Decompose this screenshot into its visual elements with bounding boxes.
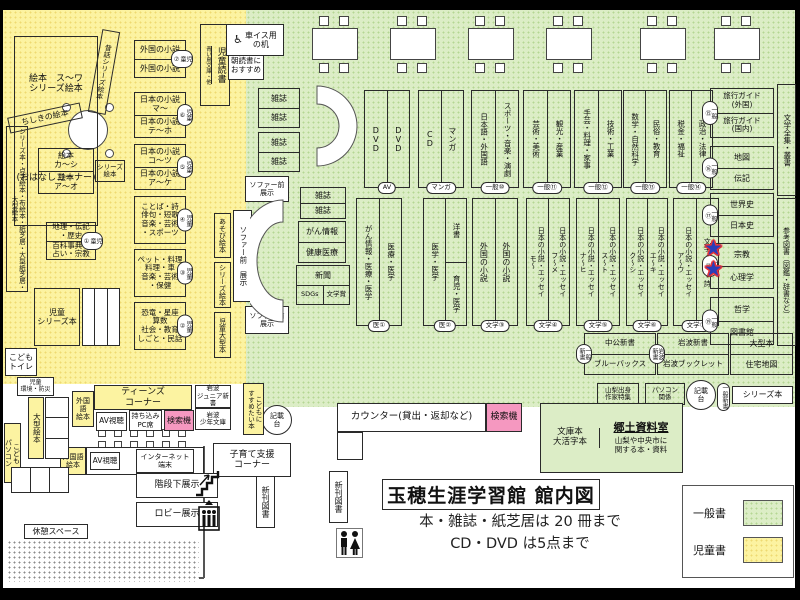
- chair: [495, 63, 505, 73]
- shelf-cell: 雑誌: [301, 188, 345, 203]
- shelf-cell: 地図: [711, 147, 773, 168]
- shinsho-iwanami-shelf: 岩波新書岩波ブックレット岩波新書: [657, 333, 729, 375]
- shelf-general-13: 数学・自然科学民俗・教育一般⑬: [623, 90, 667, 188]
- shelf-cell: 岩波ブックレット: [658, 354, 728, 375]
- category-tag: 文学④: [534, 320, 563, 332]
- wheelchair-icon: ♿: [233, 34, 243, 47]
- magazine-rack: 雑誌雑誌: [258, 132, 300, 172]
- shelf-column: 医学・医学: [424, 199, 445, 325]
- highlight-star-icon: ★: [704, 259, 723, 280]
- shelf-column: 洋書: [446, 199, 467, 262]
- shelf-cell: 旅行ガイド (外国): [711, 89, 773, 113]
- category-tag: 児童⑦: [171, 50, 193, 68]
- rest-space-area: [7, 540, 199, 582]
- left-wall-shelf: シリーズ本・点字絵本・布絵本・紙芝居・大型紙芝居・大型絵本: [6, 126, 28, 292]
- shelf-literature-4: 日本の小説・エッセイ モ〜日本の小説・エッセイ フ〜メ文学④: [526, 198, 570, 326]
- category-tag: 一般⑫: [583, 182, 613, 194]
- shelf-column: CD: [419, 91, 441, 187]
- legend-row-children: 児童書: [693, 537, 783, 563]
- shelf-column: 技術・工業: [598, 91, 622, 187]
- empty-shelf-cell: [46, 438, 68, 458]
- legend-swatch-general: [743, 500, 783, 526]
- recommended-for-kids: こどもに すすめたい本: [243, 383, 264, 435]
- shinsho-chuko-shelf: 中公新書ブルーバックス一般新書: [584, 333, 656, 375]
- chair: [721, 63, 731, 73]
- chair: [417, 63, 427, 73]
- reading-table: [390, 28, 436, 60]
- category-tag: 一般⑮: [702, 101, 718, 125]
- chair: [105, 149, 114, 158]
- shelf-cell: 岩波新書: [658, 334, 728, 354]
- chair: [647, 16, 657, 26]
- chair: [553, 63, 563, 73]
- shelf-cell: SDGs: [297, 286, 323, 304]
- shelf-column: DVD: [387, 91, 410, 187]
- shelf-column: 外国の小説: [473, 199, 495, 325]
- shelf-unit: [45, 397, 69, 459]
- reading-table: [546, 28, 592, 60]
- highlight-star-icon: ★: [704, 238, 723, 259]
- shelf-cell: 日本史: [711, 215, 773, 237]
- chair: [319, 63, 329, 73]
- morning-reading-display: 朝読書に おすすめ: [228, 52, 264, 80]
- shelf-cell: 雑誌: [301, 203, 345, 219]
- category-tag: 児童②: [177, 315, 193, 338]
- lending-rule-books: 本・雑誌・紙芝居は 20 冊まで: [392, 510, 648, 531]
- chair: [475, 63, 485, 73]
- shelf-general-17: 世界史日本史一般⑰: [710, 193, 774, 237]
- category-tag: 一般⑯: [702, 158, 718, 179]
- crescent-sofa: [314, 84, 362, 172]
- av-booth: AV視聴: [90, 452, 120, 470]
- shelf-cell: 住宅地図: [731, 354, 792, 375]
- shelf-sublabel: 青い鳥文庫・他: [201, 46, 212, 85]
- search-terminal: 検索機: [164, 410, 194, 431]
- chair: [573, 16, 583, 26]
- category-tag: 一般⑬: [630, 182, 660, 194]
- byod-pc-seat: 持ち込み PC席: [129, 410, 162, 431]
- empty-shelf-cell: [94, 289, 106, 345]
- large-books-shelf: 大型本住宅地図: [730, 333, 793, 375]
- children-shelf-6: 日本の小説 マ〜日本の小説 テ〜ホ児童⑥: [134, 92, 186, 138]
- series-ehon-shelf: シリーズ絵本: [214, 262, 231, 308]
- empty-shelf-cell: [46, 417, 68, 437]
- writing-stand: 記載 台: [686, 380, 716, 410]
- shelf-medical-1: がん情報・医療・医学医療・医学医①: [356, 198, 402, 326]
- children-shelf-2: 恐竜・星座 算数 社会・教育 しごと・民話児童②: [134, 302, 186, 350]
- counter-leg: [337, 432, 363, 460]
- shelf-cell: 世界史: [711, 194, 773, 215]
- picture-books-shelf: 絵本 カ〜シ絵本 ア〜オ: [38, 148, 94, 194]
- iwanami-junior-shinsho: 岩波 ジュニア新書: [195, 385, 231, 408]
- childcare-support-corner: 子育て支援 コーナー: [213, 443, 291, 477]
- shelf-unit: [11, 467, 69, 493]
- category-tag: 文学⑤: [584, 320, 613, 332]
- shelf-column: 日本の小説・エッセイ ク〜シ: [627, 199, 647, 325]
- shelf-cell: 絵本 カ〜シ: [39, 149, 93, 171]
- shelf-literature-3: 外国の小説外国の小説文学③: [472, 198, 518, 326]
- bunko-large-print-cell: 文庫本 大活字本: [541, 428, 600, 448]
- shelf-column: 日本語・外国語: [472, 91, 495, 187]
- chair: [667, 63, 677, 73]
- empty-shelf-cell: [46, 398, 68, 417]
- shelf-cell: 哲学: [711, 298, 773, 321]
- chair: [475, 16, 485, 26]
- shelf-column: 医療・医学: [379, 199, 402, 325]
- shelf-column: 芸術・美術: [524, 91, 547, 187]
- shelf-column: スポーツ・音楽・演劇: [495, 91, 519, 187]
- local-materials-room: 文庫本 大活字本郷土資料室山梨や中央市に 関する本・資料: [540, 403, 683, 473]
- series-books-shelf: シリーズ本: [732, 386, 793, 404]
- category-tag: 一般⑭: [676, 182, 706, 194]
- legend: 一般書 児童書: [682, 485, 794, 578]
- search-terminal: 検索機: [486, 403, 522, 432]
- yamanashi-authors-display: 山梨出身 作家特集: [597, 383, 639, 405]
- shelf-column: 手芸・料理・家事: [575, 91, 598, 187]
- category-tag: 一般⑩: [481, 182, 510, 194]
- shelf-cell: ブルーバックス: [585, 354, 655, 375]
- cancer-health-info-rack: がん情報健康医療: [298, 221, 346, 263]
- children-series-shelf: 児童 シリーズ本: [34, 288, 80, 346]
- shelf-cell: 健康医療: [299, 242, 345, 263]
- shelf-column: 税金・福祉: [670, 91, 691, 187]
- category-tag: 一般⑲: [702, 310, 718, 333]
- elevator-icon: [198, 500, 220, 535]
- empty-shelf-cell: [12, 468, 30, 492]
- empty-shelf-cell: [83, 289, 94, 345]
- reading-table: [468, 28, 514, 60]
- shelf-column: 日本の小説・エッセイ ア〜ウ: [674, 199, 696, 325]
- shelf-general-12: 手芸・料理・家事技術・工業一般⑫: [574, 90, 622, 188]
- chair: [667, 16, 677, 26]
- category-tag: マンガ: [426, 182, 456, 194]
- shelf-column: 日本の小説・エッセイ フ〜メ: [548, 199, 570, 325]
- chair: [647, 63, 657, 73]
- children-environment-shelf: 児童 環境・防災: [17, 377, 54, 396]
- wheelchair-desk: ♿車イス用 の机: [226, 24, 284, 56]
- category-tag: 児童④: [177, 209, 193, 232]
- legend-label-children: 児童書: [693, 542, 726, 558]
- shelf-column: DVD: [365, 91, 387, 187]
- shelf-cell: 新聞: [297, 266, 349, 286]
- series-ehon-tag: シリーズ 絵本: [95, 160, 125, 182]
- chair: [721, 16, 731, 26]
- shelf-medical-2: 医学・医学洋書育児・医学医②: [423, 198, 467, 326]
- empty-shelf-cell: [30, 468, 49, 492]
- shelf-column: 日本の小説・エッセイ モ〜: [527, 199, 548, 325]
- chair: [339, 16, 349, 26]
- foreign-picture-books: 外国語 絵本: [72, 391, 94, 427]
- chair: [397, 16, 407, 26]
- shelf-column: がん情報・医療・医学: [357, 199, 379, 325]
- chair: [553, 16, 563, 26]
- shelf-cell: がん情報: [299, 222, 345, 242]
- shelf-cell: 雑誌: [259, 133, 299, 152]
- reading-table: [312, 28, 358, 60]
- empty-shelf-cell: [49, 468, 68, 492]
- rest-space-label: 休憩スペース: [24, 524, 88, 539]
- shelf-column: 日本の小説・エッセイ ス〜ト: [598, 199, 620, 325]
- reference-books-shelf: 参考図書（図鑑・辞書など）: [777, 198, 796, 346]
- shelf-column: 外国の小説: [495, 199, 518, 325]
- shelf-manga: CDマンガマンガ: [418, 90, 464, 188]
- category-tag: 医①: [368, 320, 390, 332]
- iwanami-shonen-bunko: 岩波 少年文庫: [195, 408, 231, 430]
- newspaper-rack: 新聞SDGs文学賞: [296, 265, 350, 305]
- category-tag: 医②: [434, 320, 456, 332]
- large-picture-books: 大型絵本: [28, 397, 44, 459]
- shelf-column: マンガ: [441, 91, 464, 187]
- category-tag: 一般⑪: [532, 182, 562, 194]
- chair: [417, 16, 427, 26]
- children-shelf-5: 日本の小説 コ〜ツ日本の小説 ア〜ケ児童⑤: [134, 144, 186, 190]
- shelf-cell: 中公新書: [585, 334, 655, 354]
- shelf-general-10: 日本語・外国語スポーツ・音楽・演劇一般⑩: [471, 90, 519, 188]
- teens-corner: ティーンズ コーナー: [94, 385, 192, 410]
- chair: [741, 16, 751, 26]
- writing-stand: 記載 台: [262, 405, 292, 435]
- chair: [319, 16, 329, 26]
- shelf-column: 日本の小説・エッセイ ナ〜ヒ: [577, 199, 598, 325]
- shelf-column: 民俗・教育: [645, 91, 667, 187]
- category-tag: 文学③: [481, 320, 510, 332]
- asobi-ehon-shelf: あそび絵本: [214, 213, 231, 258]
- chair: [397, 63, 407, 73]
- shelf-general-11: 芸術・美術観光・産業一般⑪: [523, 90, 571, 188]
- children-toilet: こども トイレ: [5, 348, 37, 376]
- reading-table: [714, 28, 760, 60]
- shelf-column: 数学・自然科学: [624, 91, 645, 187]
- empty-shelf-cell: [107, 289, 119, 345]
- literature-collection-shelf: 文学全集・叢書: [777, 84, 796, 196]
- category-tag: 一般新書: [576, 344, 592, 364]
- shelf-cell: 大型本: [731, 334, 792, 354]
- shelf-general-16: 地図伝記一般⑯: [710, 146, 774, 190]
- shelf-cell: 旅行ガイド (国内): [711, 113, 773, 138]
- internet-terminal: インターネット 端末: [136, 449, 194, 473]
- service-counter: カウンター(貸出・返却など): [337, 403, 486, 432]
- legend-label-general: 一般書: [693, 505, 726, 521]
- restroom-icon: [336, 528, 363, 562]
- pc-related-shelf: パソコン 関係: [645, 383, 685, 405]
- shelf-cell: 絵本 ア〜オ: [39, 171, 93, 194]
- category-tag: 一般⑰: [702, 205, 718, 226]
- shelf-literature-5: 日本の小説・エッセイ ナ〜ヒ日本の小説・エッセイ ス〜ト文学⑤: [576, 198, 620, 326]
- new-books-shelf: 新刊図書: [329, 471, 348, 523]
- reading-table: [640, 28, 686, 60]
- shelf-cell: 雑誌: [259, 89, 299, 108]
- map-title: 玉穂生涯学習館 館内図: [382, 479, 600, 510]
- library-floor-map: ★ ★ 玉穂生涯学習館 館内図 本・雑誌・紙芝居: [0, 0, 800, 600]
- shelf-cell: 伝記: [711, 168, 773, 190]
- lending-rule-av: CD・DVD は5点まで: [392, 532, 648, 553]
- children-shelf-3: ペット・料理 料理・車 音楽・芸術 ・保健児童③: [134, 249, 186, 297]
- shinsho-tag: 一般新書: [717, 383, 730, 411]
- legend-swatch-children: [743, 537, 783, 563]
- legend-row-general: 一般書: [693, 500, 783, 526]
- shelf-column: 観光・産業: [547, 91, 571, 187]
- shelf-av: DVDDVDAV: [364, 90, 410, 188]
- magazine-rack: 雑誌雑誌: [258, 88, 300, 128]
- geography-biography-shelf: 地理・伝記 ・歴史百科事典・ 占い・宗教児童①: [46, 222, 96, 260]
- new-books-shelf: 新刊図書: [256, 476, 275, 528]
- stairs-icon: [194, 469, 220, 501]
- shelf-general-15: 旅行ガイド (外国)旅行ガイド (国内)一般⑮: [710, 88, 774, 138]
- chair: [741, 63, 751, 73]
- children-shelf-7: 外国の小説外国の小説児童⑦: [134, 40, 186, 78]
- chair: [495, 16, 505, 26]
- category-tag: 児童⑥: [177, 104, 193, 126]
- shelf-column: 日本の小説・エッセイ エ〜キ: [647, 199, 668, 325]
- shelf-unit: [82, 288, 120, 346]
- shelf-cell: 文学賞: [323, 286, 350, 304]
- shelf-column: 育児・医学: [446, 262, 467, 326]
- chair: [339, 63, 349, 73]
- local-room-title: 郷土資料室: [614, 422, 669, 435]
- local-room-description: 山梨や中央市に 関する本・資料: [615, 437, 668, 454]
- desk-label: 車イス用 の机: [245, 31, 277, 49]
- children-large-books-shelf: 児童大型本: [214, 312, 231, 358]
- category-tag: 文学⑥: [633, 320, 662, 332]
- category-tag: 児童③: [177, 262, 193, 285]
- category-tag: 岩波新書: [649, 344, 665, 364]
- magazine-rack: 雑誌雑誌: [300, 187, 346, 219]
- av-booth: AV視聴: [96, 412, 127, 431]
- category-tag: 児童①: [81, 232, 103, 250]
- crescent-sofa: [250, 198, 286, 328]
- shelf-cell: 雑誌: [259, 152, 299, 172]
- children-shelf-4: ことば・詩 俳句・短歌 音楽・芸術 ・スポーツ児童④: [134, 196, 186, 244]
- category-tag: 児童⑤: [177, 156, 193, 178]
- category-tag: AV: [378, 182, 396, 194]
- shelf-cell: 雑誌: [259, 108, 299, 128]
- chair: [573, 63, 583, 73]
- shelf-literature-6: 日本の小説・エッセイ ク〜シ日本の小説・エッセイ エ〜キ文学⑥: [626, 198, 668, 326]
